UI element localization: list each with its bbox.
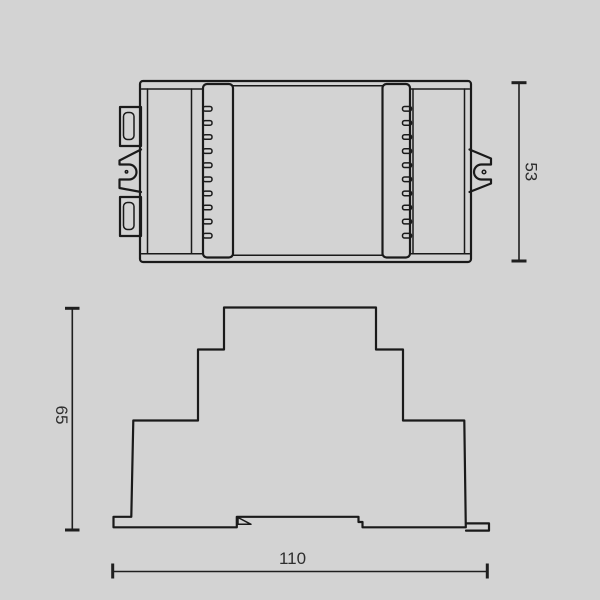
top-view-left-strip-teeth: [203, 107, 212, 239]
dimension-label-53: 53: [522, 162, 541, 181]
front-profile-view: [114, 308, 490, 531]
top-view-right-clip: [470, 150, 492, 193]
dimension-110: 110: [113, 549, 488, 579]
top-view: [120, 81, 492, 262]
top-view-left-claws: [120, 107, 141, 236]
dimension-drawing: 53 65 110: [0, 0, 600, 600]
top-view-left-clip: [120, 150, 142, 193]
top-view-cover-edges: [233, 86, 383, 255]
dimension-53: 53: [512, 83, 541, 261]
drawing-canvas: 53 65 110: [0, 0, 600, 600]
left-claw-top-slot: [124, 113, 135, 140]
dimension-65: 65: [52, 308, 79, 530]
profile-latch-beak: [238, 518, 251, 525]
left-claw-bottom-slot: [124, 203, 135, 230]
top-view-body-outline: [140, 81, 471, 262]
dimension-label-110: 110: [279, 549, 306, 568]
profile-right-foot: [466, 523, 489, 530]
top-view-endcap-seams: [142, 89, 470, 254]
profile-outline: [114, 308, 466, 528]
top-view-left-strip: [203, 84, 233, 258]
top-view-right-strip: [383, 84, 411, 258]
dimension-label-65: 65: [52, 406, 71, 425]
